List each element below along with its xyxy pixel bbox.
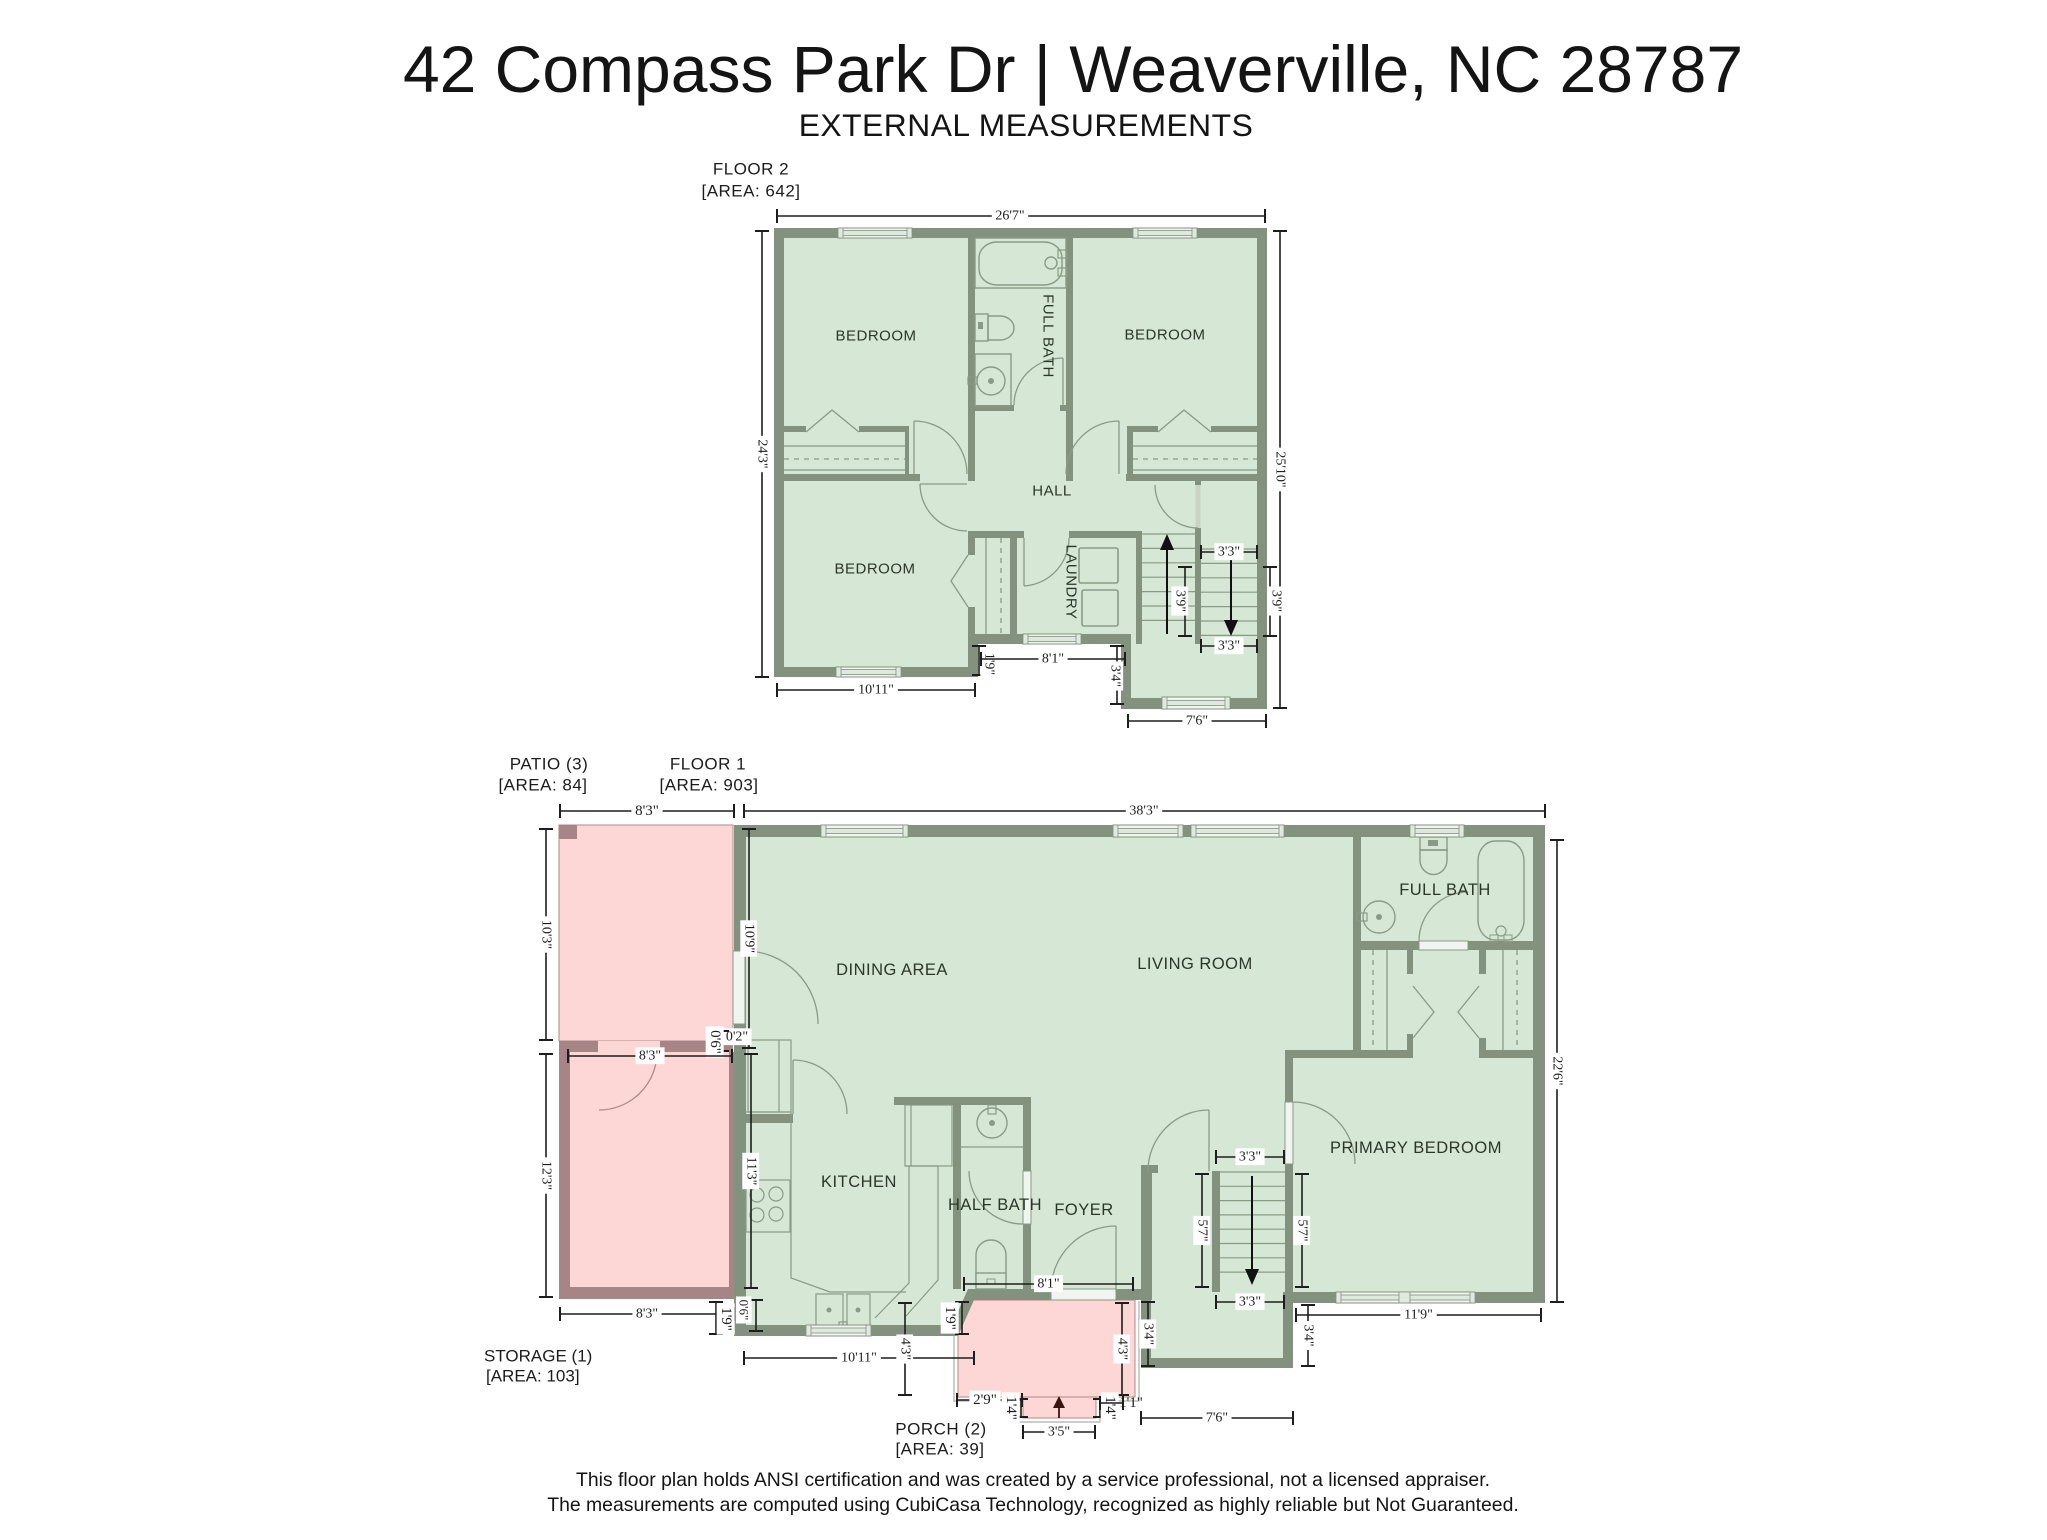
svg-text:LIVING ROOM: LIVING ROOM bbox=[1137, 955, 1253, 973]
svg-text:3'3": 3'3" bbox=[1239, 1150, 1261, 1165]
svg-text:HALL: HALL bbox=[1032, 483, 1072, 500]
svg-text:LAUNDRY: LAUNDRY bbox=[1063, 545, 1080, 620]
svg-text:1'9": 1'9" bbox=[718, 1307, 734, 1331]
svg-text:3'5": 3'5" bbox=[1048, 1425, 1070, 1440]
svg-text:4'3": 4'3" bbox=[898, 1338, 913, 1360]
svg-text:[AREA: 103]: [AREA: 103] bbox=[486, 1367, 580, 1386]
svg-text:3'4": 3'4" bbox=[1108, 665, 1123, 687]
svg-text:11'9": 11'9" bbox=[1404, 1308, 1433, 1323]
svg-text:26'7": 26'7" bbox=[995, 209, 1024, 224]
svg-text:This floor plan holds ANSI cer: This floor plan holds ANSI certification… bbox=[576, 1469, 1490, 1491]
svg-text:DINING AREA: DINING AREA bbox=[836, 961, 948, 979]
svg-text:BEDROOM: BEDROOM bbox=[1124, 327, 1205, 344]
svg-text:[AREA: 84]: [AREA: 84] bbox=[498, 776, 587, 795]
svg-text:8'3": 8'3" bbox=[639, 1049, 661, 1064]
svg-text:10'11": 10'11" bbox=[841, 1351, 877, 1366]
svg-text:PRIMARY BEDROOM: PRIMARY BEDROOM bbox=[1330, 1139, 1502, 1157]
svg-text:0'2": 0'2" bbox=[726, 1030, 748, 1045]
svg-text:42 Compass Park Dr | Weavervil: 42 Compass Park Dr | Weaverville, NC 287… bbox=[403, 32, 1743, 106]
svg-text:1'4": 1'4" bbox=[1102, 1396, 1118, 1420]
svg-text:HALF BATH: HALF BATH bbox=[948, 1196, 1042, 1214]
svg-text:8'3": 8'3" bbox=[636, 1307, 658, 1322]
svg-text:8'1": 8'1" bbox=[1042, 652, 1064, 667]
svg-text:FLOOR 2: FLOOR 2 bbox=[713, 160, 789, 179]
svg-text:1'9": 1'9" bbox=[942, 1306, 958, 1330]
svg-text:BEDROOM: BEDROOM bbox=[834, 561, 915, 578]
svg-text:4'3": 4'3" bbox=[1115, 1338, 1130, 1360]
svg-text:38'3": 38'3" bbox=[1129, 804, 1158, 819]
svg-text:The measurements are computed: The measurements are computed using Cubi… bbox=[547, 1494, 1519, 1516]
svg-text:8'3": 8'3" bbox=[635, 803, 659, 819]
svg-text:7'6": 7'6" bbox=[1186, 714, 1208, 729]
svg-text:2'9": 2'9" bbox=[973, 1392, 997, 1408]
svg-text:22'6": 22'6" bbox=[1550, 1056, 1565, 1085]
svg-text:BEDROOM: BEDROOM bbox=[835, 328, 916, 345]
svg-text:3'9": 3'9" bbox=[1173, 590, 1188, 612]
svg-text:0'6": 0'6" bbox=[737, 1300, 752, 1321]
svg-text:3'4": 3'4" bbox=[1141, 1323, 1156, 1345]
svg-text:[AREA: 642]: [AREA: 642] bbox=[701, 182, 800, 201]
svg-text:PORCH (2): PORCH (2) bbox=[895, 1420, 986, 1439]
svg-text:10'3": 10'3" bbox=[539, 920, 554, 949]
svg-text:FULL BATH: FULL BATH bbox=[1399, 881, 1491, 899]
svg-text:5'7": 5'7" bbox=[1295, 1219, 1310, 1241]
svg-text:5'7": 5'7" bbox=[1195, 1219, 1210, 1241]
svg-text:7'6": 7'6" bbox=[1206, 1411, 1228, 1426]
svg-text:3'9": 3'9" bbox=[1269, 590, 1284, 612]
svg-text:8'1": 8'1" bbox=[1037, 1277, 1059, 1292]
svg-text:[AREA: 39]: [AREA: 39] bbox=[895, 1440, 984, 1459]
svg-text:STORAGE (1): STORAGE (1) bbox=[484, 1347, 592, 1366]
svg-text:10'11": 10'11" bbox=[858, 683, 894, 698]
svg-text:0'6": 0'6" bbox=[707, 1030, 723, 1054]
svg-text:3'3": 3'3" bbox=[1239, 1295, 1261, 1310]
svg-text:EXTERNAL MEASUREMENTS: EXTERNAL MEASUREMENTS bbox=[799, 107, 1254, 143]
svg-text:PATIO (3): PATIO (3) bbox=[510, 755, 589, 774]
svg-text:1'1": 1'1" bbox=[1119, 1395, 1143, 1411]
svg-text:1'9": 1'9" bbox=[982, 653, 997, 675]
svg-text:25'10": 25'10" bbox=[1273, 451, 1288, 487]
svg-text:10'9": 10'9" bbox=[742, 924, 757, 953]
svg-text:FOYER: FOYER bbox=[1054, 1201, 1113, 1219]
svg-text:FLOOR 1: FLOOR 1 bbox=[670, 755, 746, 774]
svg-text:3'3": 3'3" bbox=[1218, 545, 1240, 560]
svg-text:[AREA: 903]: [AREA: 903] bbox=[659, 776, 758, 795]
svg-text:24'3": 24'3" bbox=[755, 439, 770, 468]
svg-text:3'3": 3'3" bbox=[1218, 639, 1240, 654]
svg-text:11'3": 11'3" bbox=[744, 1157, 759, 1186]
svg-text:3'4": 3'4" bbox=[1301, 1324, 1316, 1346]
svg-text:KITCHEN: KITCHEN bbox=[821, 1173, 897, 1191]
svg-text:1'4": 1'4" bbox=[1003, 1396, 1019, 1420]
svg-text:12'3": 12'3" bbox=[539, 1161, 554, 1190]
svg-text:FULL BATH: FULL BATH bbox=[1040, 294, 1057, 378]
